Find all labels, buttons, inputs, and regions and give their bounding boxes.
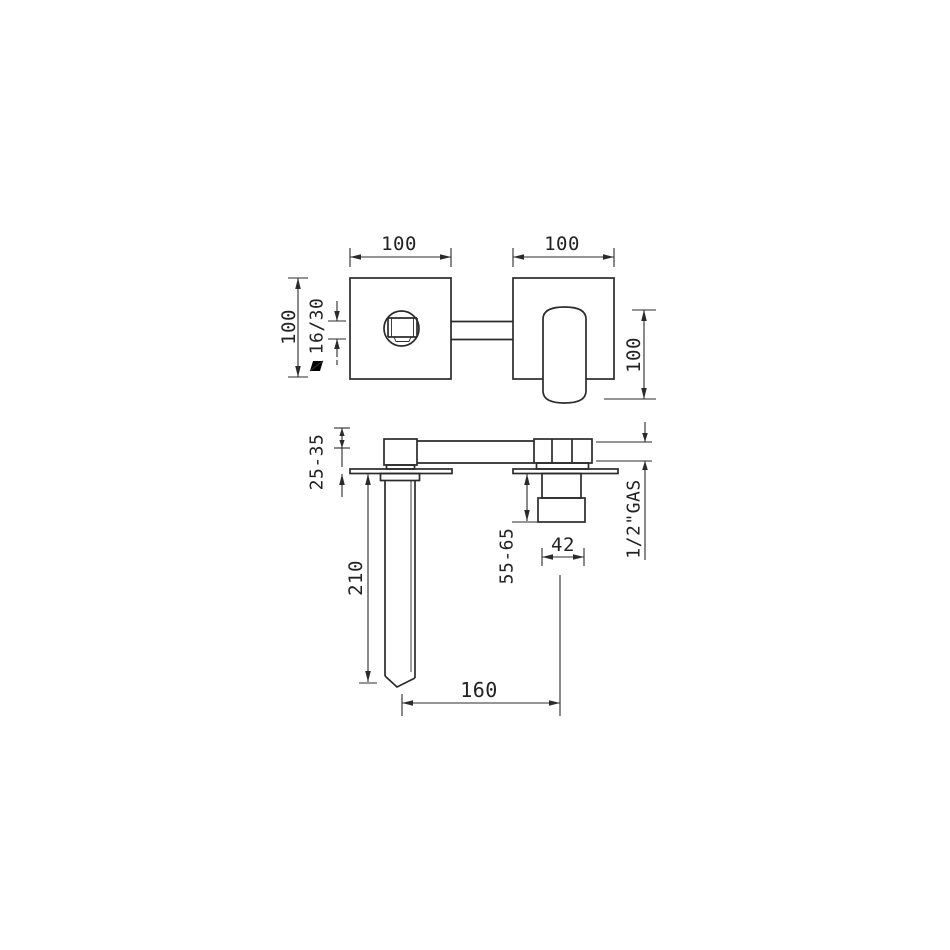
dim-label-handle-length: 100 [623,337,645,373]
dim-label-top-height-left: 100 [278,309,300,345]
square-section-symbol-icon [310,361,323,371]
top-view: 100 100 100 [278,233,656,403]
dim-valve-drop: 55-65 [497,474,541,584]
dim-top-width-left: 100 [350,233,451,267]
dim-wall-adjust: 25-35 [307,428,351,497]
spout-tip [385,676,415,687]
front-view-wall-plates [350,469,618,474]
drawing-canvas: 100 100 100 [0,0,950,950]
top-view-handle-escutcheon [513,278,614,403]
dim-inlet-thread: 1/2"GAS [624,422,648,560]
dim-label-spout-drop: 210 [345,560,367,596]
dim-label-top-width-right: 100 [544,233,580,255]
top-view-spout-escutcheon [350,278,451,379]
dim-top-width-right: 100 [513,233,614,267]
front-view: 25-35 210 55-65 42 [307,422,653,716]
handle-lever-top [543,307,586,403]
top-view-connector-bar [451,322,513,340]
technical-drawing: 100 100 100 [0,0,950,950]
dim-handle-length: 100 [604,310,656,399]
dim-label-valve-width: 42 [551,534,575,556]
dim-label-spout-reach: 160 [460,678,498,702]
dim-label-inlet-thread: 1/2"GAS [624,479,645,558]
dim-label-outlet-size: 16/30 [307,298,328,355]
dim-label-top-width-left: 100 [381,233,417,255]
dim-valve-width: 42 [542,534,584,566]
dim-spout-drop: 210 [345,474,377,683]
dim-outlet-size: 16/30 [307,298,347,371]
dim-label-valve-drop: 55-65 [497,528,518,585]
dim-label-wall-adjust: 25-35 [307,434,328,491]
dim-top-height-left: 100 [278,278,308,377]
dim-spout-reach: 160 [402,678,560,716]
